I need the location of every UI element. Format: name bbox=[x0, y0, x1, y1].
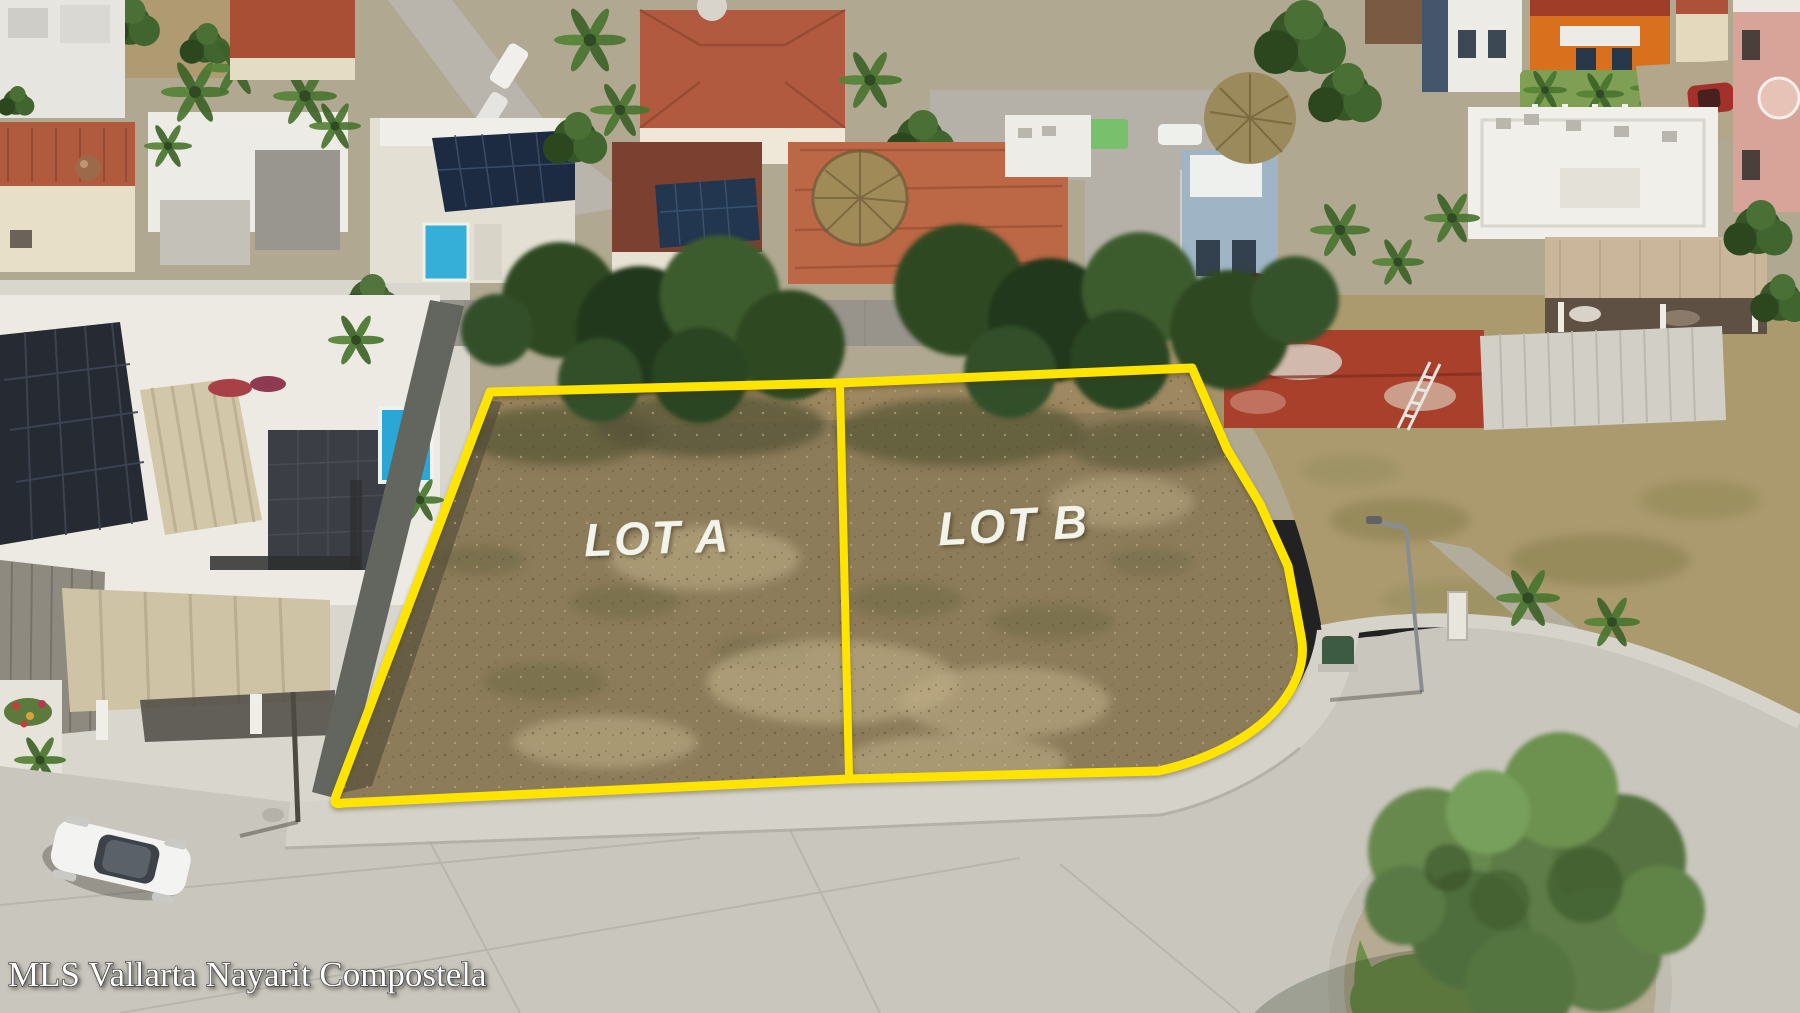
stone-pillar bbox=[1448, 592, 1467, 640]
house-terracotta-hip bbox=[640, 0, 845, 164]
house-pink bbox=[1733, 0, 1800, 212]
aerial-photo: LOT A LOT B MLS Vallarta Nayarit Compost… bbox=[0, 0, 1800, 1013]
house-terracotta-small bbox=[230, 0, 355, 80]
aerial-photo-canvas: LOT A LOT B MLS Vallarta Nayarit Compost… bbox=[0, 0, 1800, 1013]
iron-railing bbox=[210, 556, 360, 570]
white-car-top bbox=[1158, 124, 1202, 145]
house-white-navy bbox=[1422, 0, 1522, 92]
house-white-flats bbox=[0, 0, 125, 118]
lot-b-label: LOT B bbox=[937, 495, 1091, 556]
cupola-dome bbox=[75, 155, 101, 181]
lot-a-label: LOT A bbox=[583, 509, 731, 566]
corrugated-metal-roof bbox=[1480, 326, 1726, 430]
house-orange-bright bbox=[1530, 0, 1670, 72]
house-white-complex bbox=[1468, 107, 1718, 239]
small-pool-top bbox=[424, 224, 468, 280]
roof-terrace bbox=[1005, 115, 1091, 177]
utility-box-green bbox=[1322, 636, 1354, 668]
watermark: MLS Vallarta Nayarit Compostela bbox=[8, 955, 487, 994]
house-terracotta-dome bbox=[0, 122, 135, 272]
